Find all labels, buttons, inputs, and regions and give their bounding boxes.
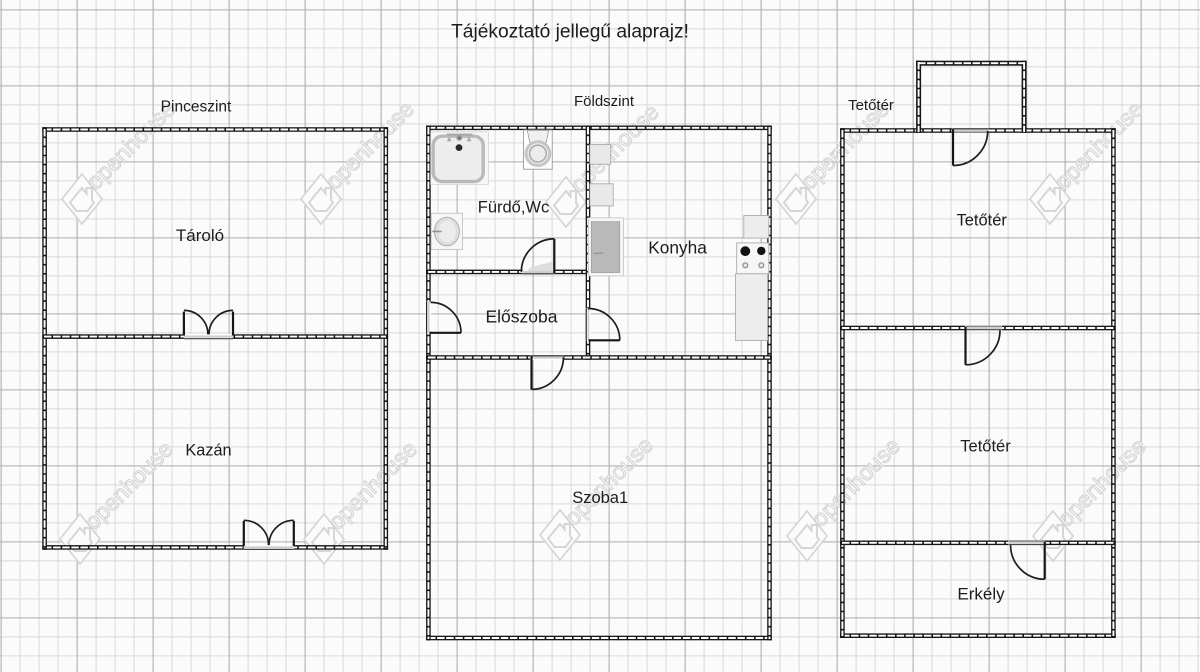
svg-text:Tároló: Tároló [176,226,224,245]
svg-text:Erkély: Erkély [957,585,1005,604]
svg-text:Fürdő,Wc: Fürdő,Wc [478,198,550,216]
svg-text:Szoba1: Szoba1 [572,489,628,507]
svg-text:Konyha: Konyha [648,238,707,258]
svg-text:Tetőtér: Tetőtér [956,212,1007,230]
svg-text:Tetőtér: Tetőtér [848,97,894,114]
svg-text:Földszint: Földszint [574,93,635,110]
svg-text:Pinceszint: Pinceszint [161,98,232,115]
svg-text:Tájékoztató jellegű alaprajz!: Tájékoztató jellegű alaprajz! [451,22,689,43]
svg-text:Előszoba: Előszoba [486,306,558,326]
svg-text:Kazán: Kazán [185,442,231,460]
svg-text:Tetőtér: Tetőtér [960,438,1011,456]
